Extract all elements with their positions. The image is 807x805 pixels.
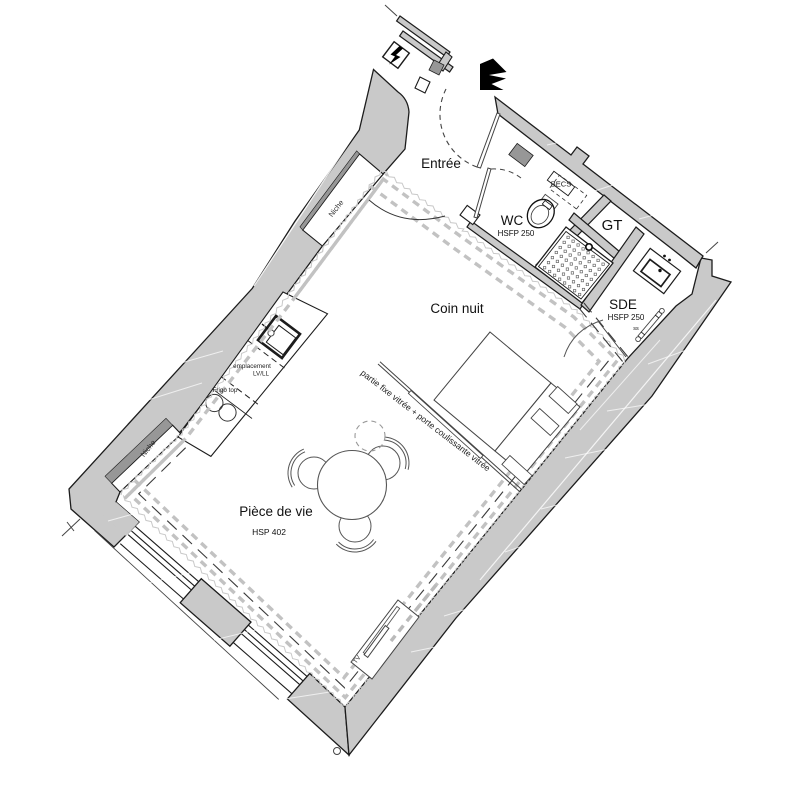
svg-text:HSP 402: HSP 402: [252, 527, 286, 537]
svg-text:LV/LL: LV/LL: [253, 371, 269, 378]
svg-text:Pièce de vie: Pièce de vie: [239, 504, 313, 519]
svg-text:Frigo top: Frigo top: [213, 387, 238, 394]
svg-text:HSFP 250: HSFP 250: [608, 313, 645, 322]
svg-text:WC: WC: [501, 213, 524, 228]
svg-text:SDE: SDE: [609, 297, 637, 312]
svg-text:ss: ss: [633, 326, 639, 332]
svg-text:Entrée: Entrée: [421, 156, 461, 171]
svg-text:HSFP 250: HSFP 250: [498, 229, 535, 238]
svg-text:GT: GT: [602, 217, 623, 234]
svg-text:emplacement: emplacement: [233, 363, 271, 370]
svg-text:BECS: BECS: [551, 180, 571, 189]
svg-text:Coin nuit: Coin nuit: [430, 301, 484, 316]
